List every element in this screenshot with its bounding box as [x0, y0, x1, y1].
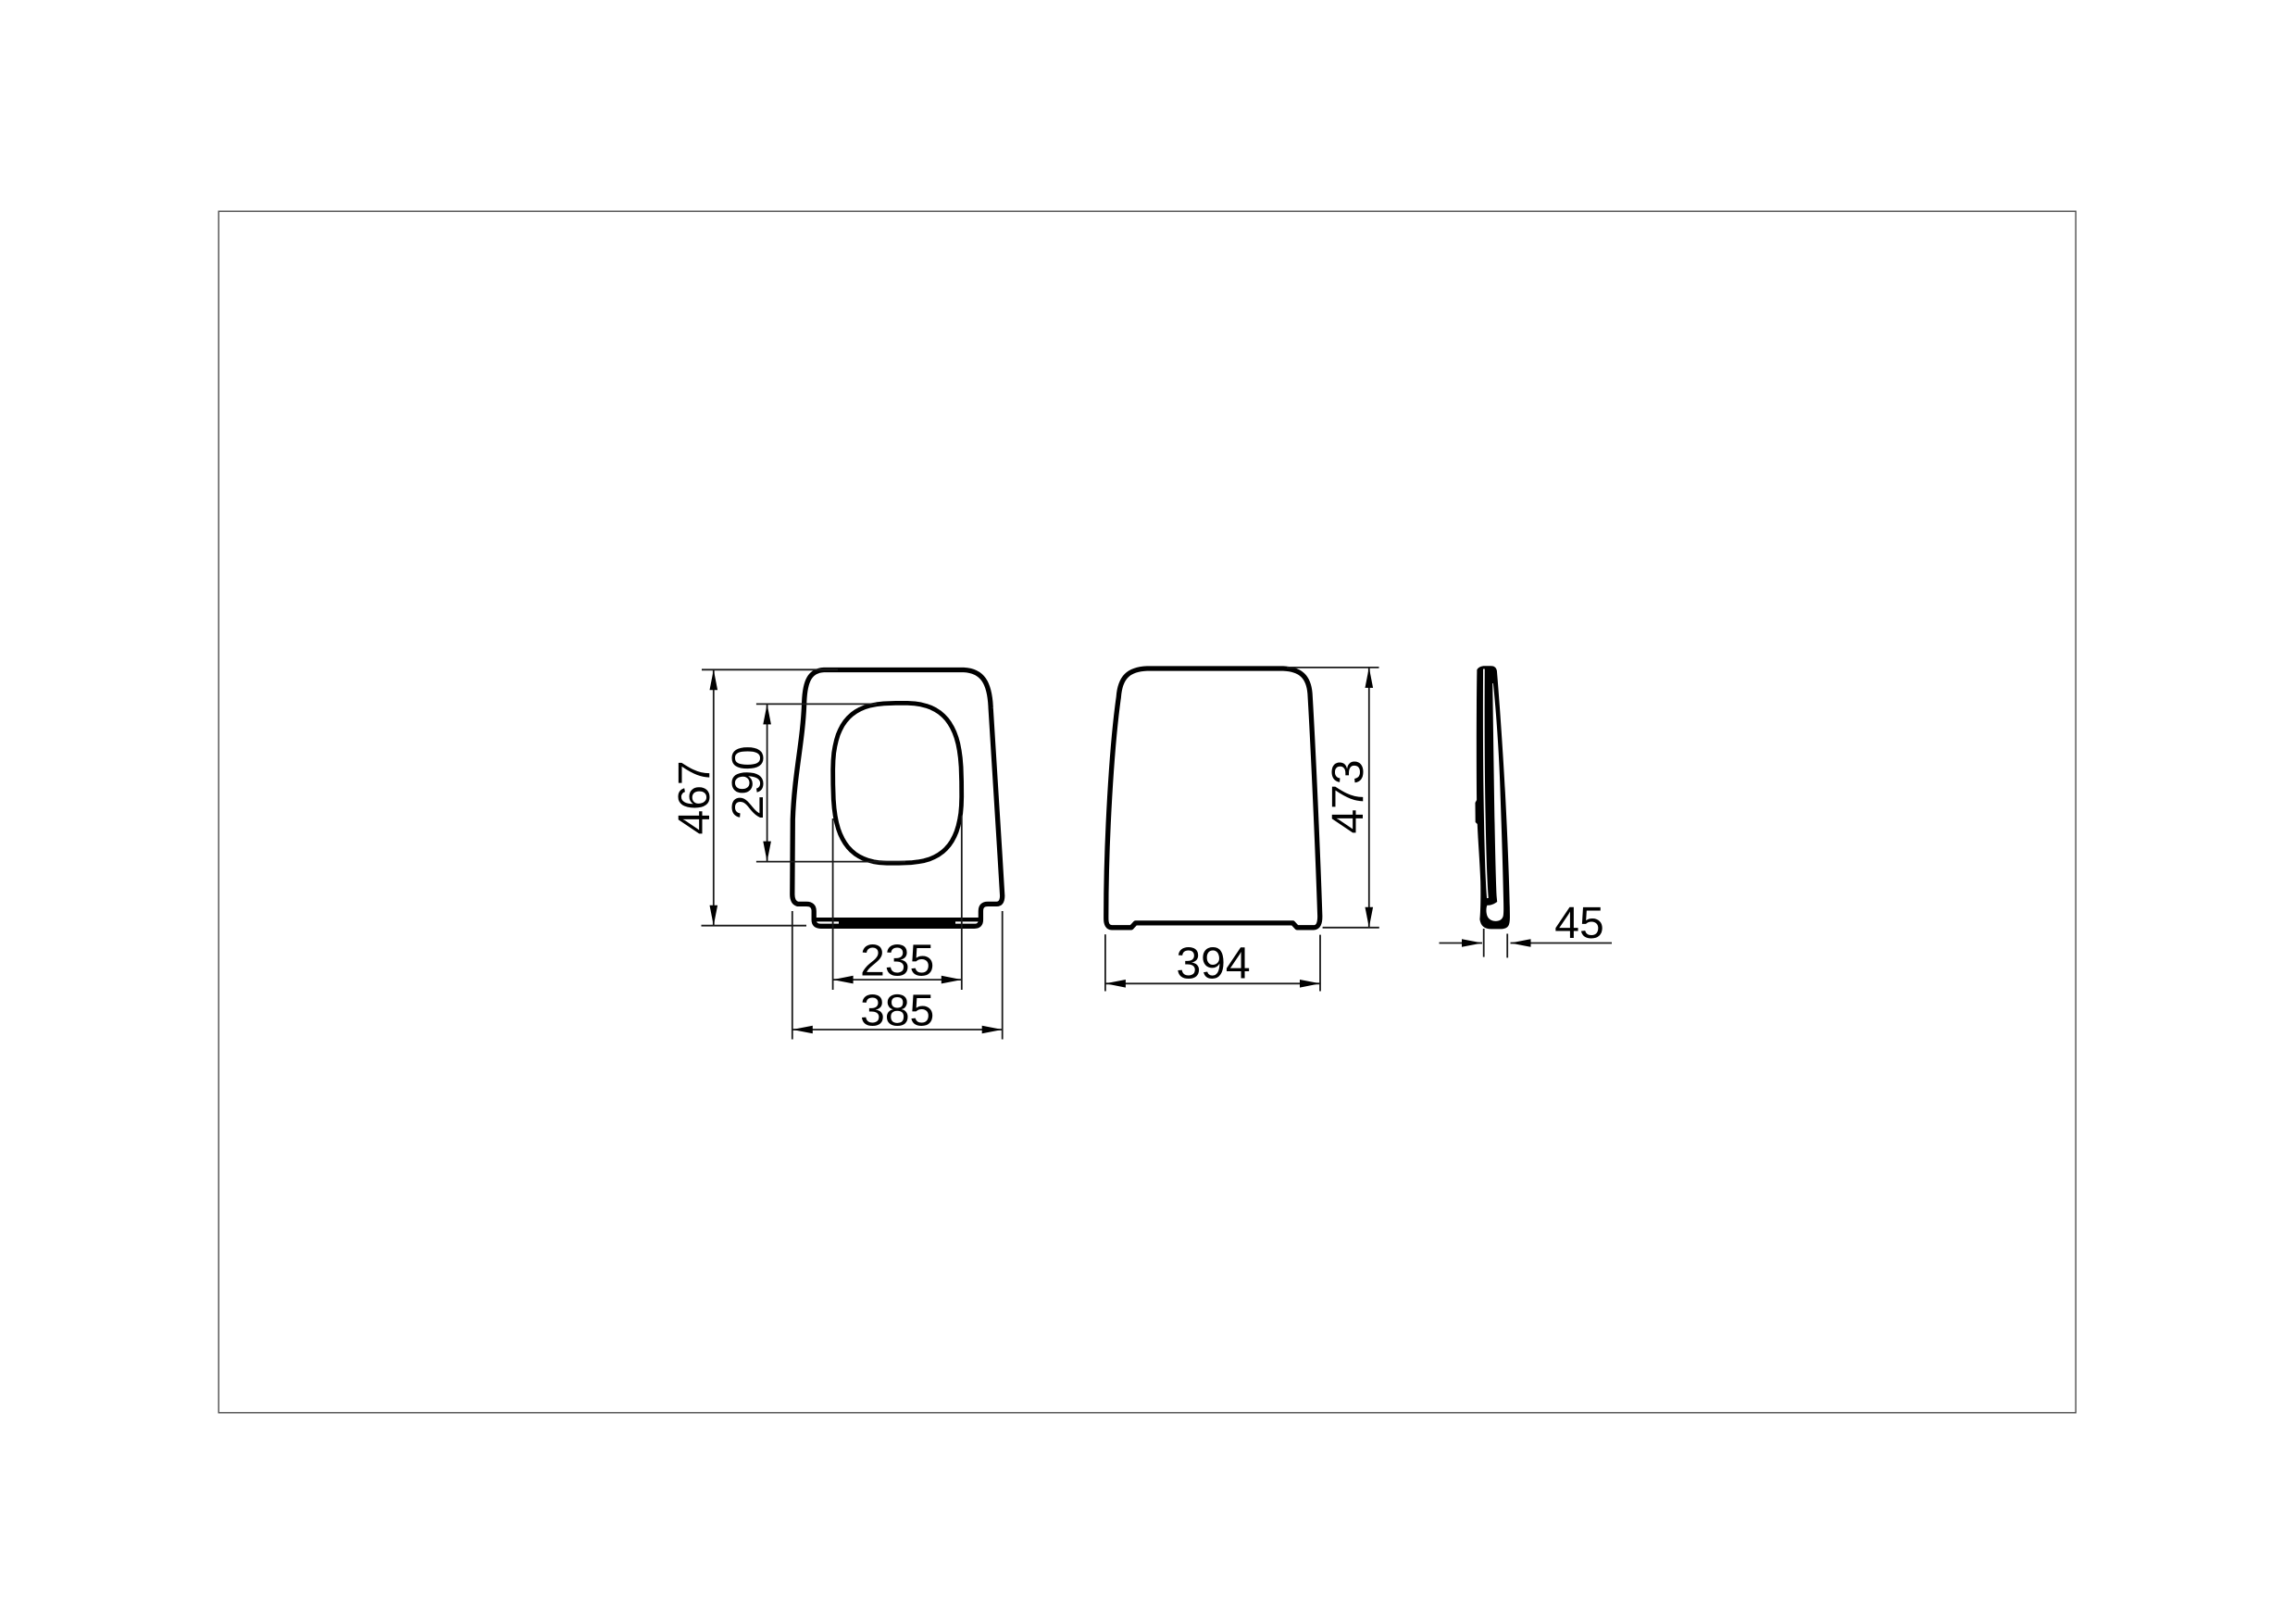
svg-text:385: 385 [860, 987, 934, 1036]
svg-text:235: 235 [860, 937, 934, 986]
svg-text:45: 45 [1554, 899, 1603, 948]
svg-text:290: 290 [724, 745, 773, 819]
svg-text:467: 467 [670, 760, 719, 834]
svg-text:473: 473 [1324, 759, 1373, 833]
svg-text:394: 394 [1176, 940, 1250, 989]
